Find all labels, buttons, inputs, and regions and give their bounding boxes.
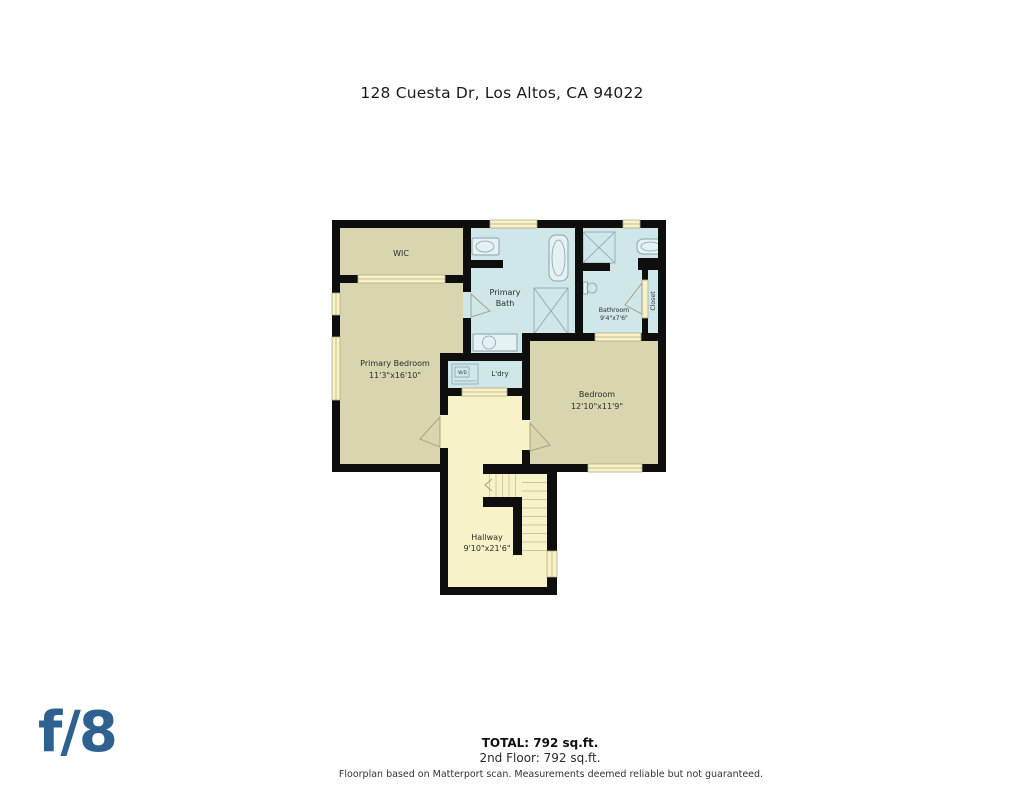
- bedroom-dims: 12'10"x11'9": [571, 402, 623, 411]
- hallway-corridor-floor: [448, 396, 522, 472]
- hallway-dims: 9'10"x21'6": [463, 544, 510, 553]
- page: 128 Cuesta Dr, Los Altos, CA 94022: [0, 0, 1024, 791]
- laundry-label: L'dry: [491, 370, 508, 378]
- door-opening: [440, 415, 448, 448]
- bathroom-label: Bathroom: [599, 307, 629, 314]
- bathroom-dims: 9'4"x7'6": [600, 315, 628, 322]
- disclaimer-text: Floorplan based on Matterport scan. Meas…: [339, 769, 763, 780]
- closet-opening: [642, 280, 648, 318]
- floor-area-text: 2nd Floor: 792 sq.ft.: [479, 751, 600, 765]
- hallway-label: Hallway: [471, 533, 503, 542]
- door-opening: [463, 292, 471, 318]
- room-hallway-floor: [448, 472, 547, 587]
- address-title: 128 Cuesta Dr, Los Altos, CA 94022: [360, 84, 643, 102]
- sink-vanity-icon: [473, 334, 517, 351]
- washer-dryer-label: W/D: [458, 370, 466, 375]
- primary-bedroom-label: Primary Bedroom: [360, 359, 430, 368]
- floorplan: WIC Primary Bedroom 11'3"x16'10" Primary…: [328, 218, 668, 598]
- closet-label: Closet: [650, 291, 657, 311]
- primary-bedroom-dims: 11'3"x16'10": [369, 371, 421, 380]
- door-opening: [522, 420, 530, 450]
- total-area-text: TOTAL: 792 sq.ft.: [482, 736, 599, 750]
- f8-logo: f/8: [38, 705, 116, 761]
- primary-bath-label-line2: Bath: [496, 299, 515, 308]
- wic-label: WIC: [393, 249, 409, 258]
- primary-bath-label-line1: Primary: [490, 288, 521, 297]
- bedroom-label: Bedroom: [579, 390, 615, 399]
